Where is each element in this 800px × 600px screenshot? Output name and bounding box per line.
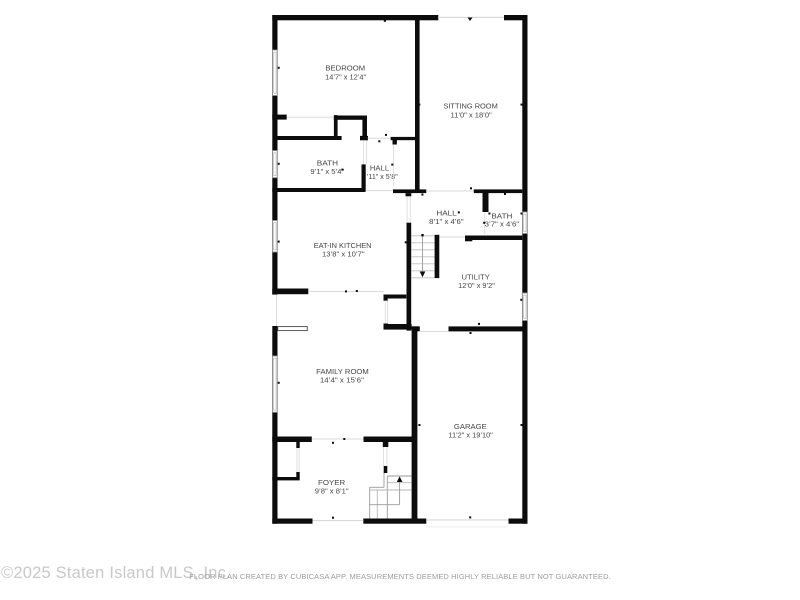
- svg-text:SITTING ROOM: SITTING ROOM: [443, 102, 497, 111]
- svg-text:12’0" x 9’2": 12’0" x 9’2": [458, 281, 495, 290]
- svg-text:11’2" x 19’10": 11’2" x 19’10": [448, 430, 493, 439]
- svg-text:UTILITY: UTILITY: [462, 273, 490, 282]
- svg-text:14’4" x 15’6": 14’4" x 15’6": [320, 375, 364, 384]
- svg-text:8’1" x 4’6": 8’1" x 4’6": [429, 217, 464, 226]
- svg-text:EAT-IN KITCHEN: EAT-IN KITCHEN: [314, 241, 372, 250]
- svg-text:11’0" x 18’0": 11’0" x 18’0": [451, 110, 493, 119]
- svg-text:9’8" x 8’1": 9’8" x 8’1": [315, 487, 349, 496]
- svg-text:FLOOR PLAN CREATED BY CUBICASA: FLOOR PLAN CREATED BY CUBICASA APP. MEAS…: [189, 572, 611, 581]
- svg-text:3’7" x 4’6": 3’7" x 4’6": [485, 220, 520, 229]
- svg-text:BEDROOM: BEDROOM: [325, 64, 365, 73]
- svg-text:13’8" x 10’7": 13’8" x 10’7": [322, 250, 365, 259]
- svg-text:9’1" x 5’4": 9’1" x 5’4": [310, 167, 344, 176]
- svg-text:14’7" x 12’4": 14’7" x 12’4": [325, 73, 366, 82]
